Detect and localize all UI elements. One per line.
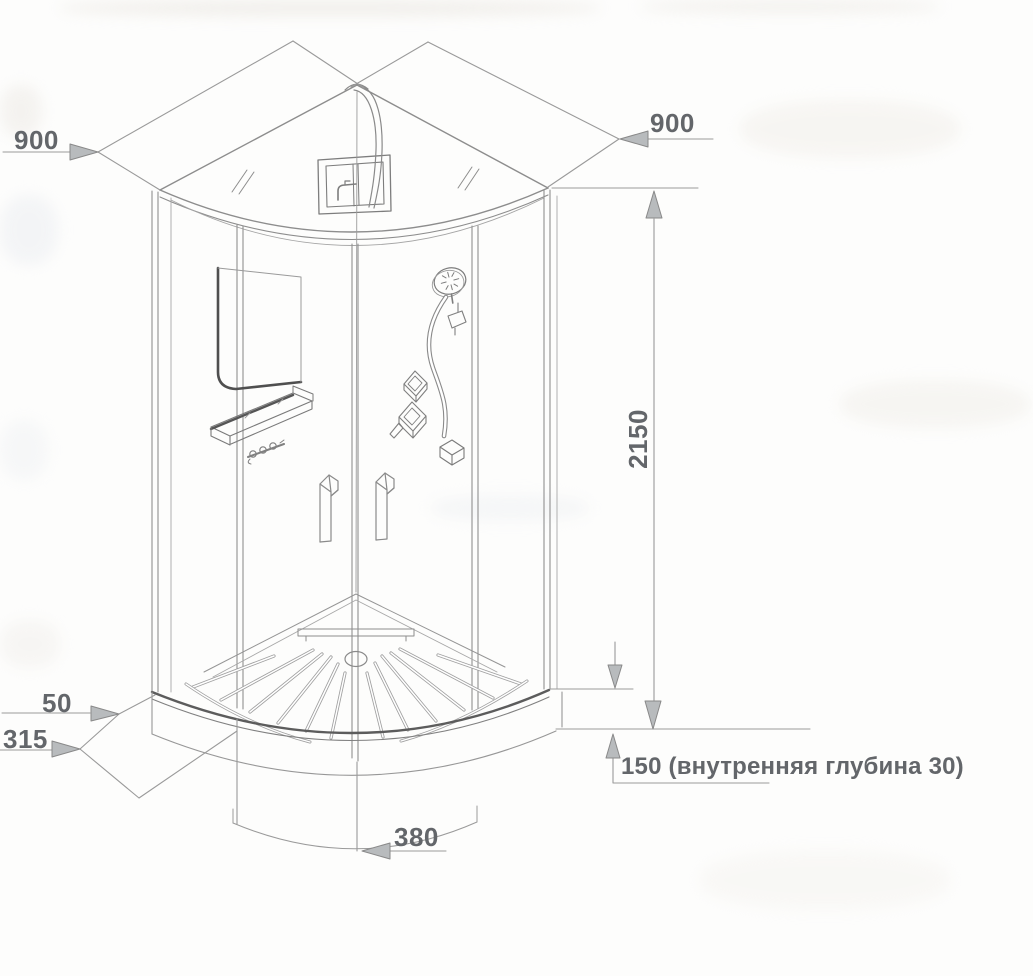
shower-head-icon	[429, 264, 471, 307]
door-handles	[320, 473, 394, 542]
arrowhead	[645, 701, 661, 729]
dimension-label-door-offset: 380	[394, 824, 439, 850]
dimension-label-height: 2150	[625, 405, 651, 473]
arrowhead	[608, 665, 622, 688]
arrowhead	[646, 191, 662, 218]
dimension-label-tray-front: 315	[3, 726, 48, 752]
skylight-panel	[318, 155, 391, 214]
roof	[160, 85, 548, 246]
dimension-label-right-width: 900	[650, 110, 695, 136]
overhead-hose-icon	[345, 84, 382, 208]
hand-shower-hose-icon	[429, 297, 446, 436]
hose-holder	[440, 440, 464, 465]
arrowhead	[70, 144, 98, 160]
faucet-icon	[248, 440, 284, 464]
arrowhead	[606, 734, 620, 758]
mirror	[218, 268, 301, 389]
shower-rail-bracket	[448, 303, 466, 335]
drain-icon	[345, 652, 367, 667]
dimension-label-tray-rim: 50	[42, 690, 72, 716]
arrowhead	[362, 843, 390, 859]
mixer-valve-icon	[390, 371, 427, 438]
arrowhead	[91, 706, 119, 721]
arrowhead	[620, 131, 648, 147]
line-art	[0, 0, 1033, 976]
arrowhead	[52, 741, 80, 757]
tray-ledge	[298, 629, 414, 641]
dimension-label-tray-height: 150 (внутренняя глубина 30)	[621, 755, 964, 779]
shelf	[211, 386, 313, 445]
shower-cabin-dimension-drawing: 900 900 2150 50 315 380 150 (внутренняя …	[0, 0, 1033, 976]
tray-skirt	[233, 806, 477, 849]
dimension-label-left-width: 900	[14, 127, 59, 153]
